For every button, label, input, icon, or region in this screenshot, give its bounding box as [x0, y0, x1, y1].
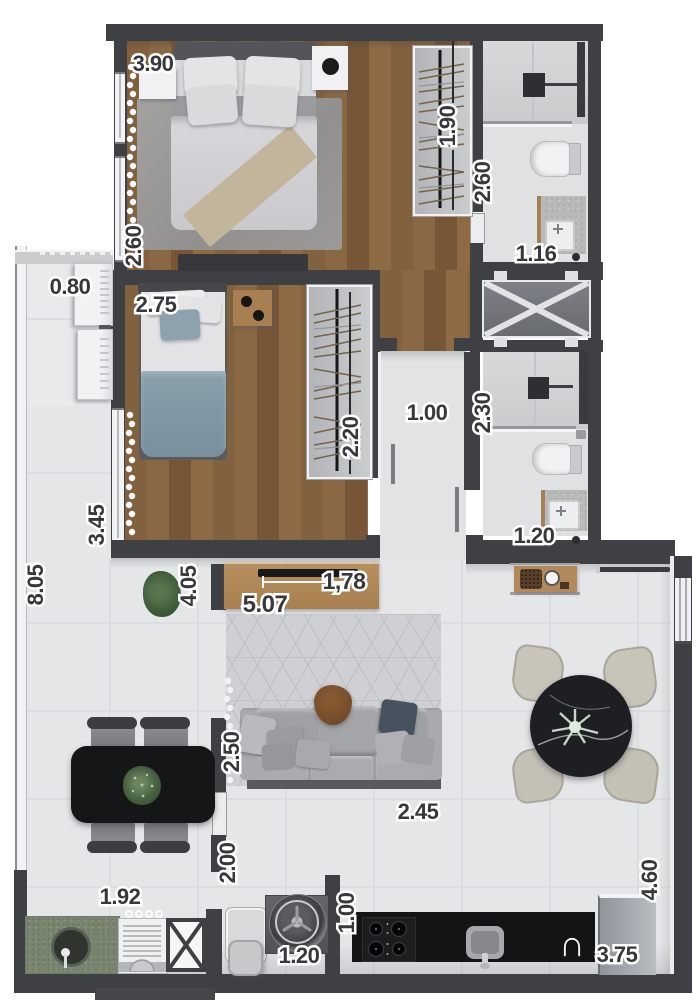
svg-text:2.75: 2.75 — [136, 292, 177, 317]
svg-text:1,78: 1,78 — [323, 568, 366, 594]
svg-text:2.60: 2.60 — [121, 225, 146, 266]
svg-text:0.80: 0.80 — [50, 274, 91, 299]
svg-text:2.00: 2.00 — [215, 842, 240, 883]
svg-text:5.07: 5.07 — [243, 591, 288, 618]
svg-text:8.05: 8.05 — [23, 564, 48, 605]
svg-text:1.00: 1.00 — [334, 892, 359, 933]
svg-text:1.90: 1.90 — [435, 105, 460, 146]
svg-text:3.90: 3.90 — [133, 51, 174, 76]
svg-text:3.45: 3.45 — [84, 504, 109, 545]
svg-text:2.60: 2.60 — [470, 161, 495, 202]
svg-text:4.60: 4.60 — [637, 859, 662, 900]
svg-text:3.75: 3.75 — [597, 942, 638, 967]
svg-text:1.16: 1.16 — [516, 241, 557, 266]
svg-text:2.50: 2.50 — [219, 731, 244, 772]
svg-text:2.45: 2.45 — [398, 799, 439, 824]
svg-text:1.20: 1.20 — [514, 523, 555, 548]
svg-text:1.92: 1.92 — [100, 884, 141, 909]
svg-text:2.20: 2.20 — [338, 416, 363, 457]
svg-text:2.30: 2.30 — [470, 392, 495, 433]
svg-text:1.00: 1.00 — [407, 400, 448, 425]
svg-text:1.20: 1.20 — [279, 943, 320, 968]
svg-text:4.05: 4.05 — [176, 565, 201, 606]
